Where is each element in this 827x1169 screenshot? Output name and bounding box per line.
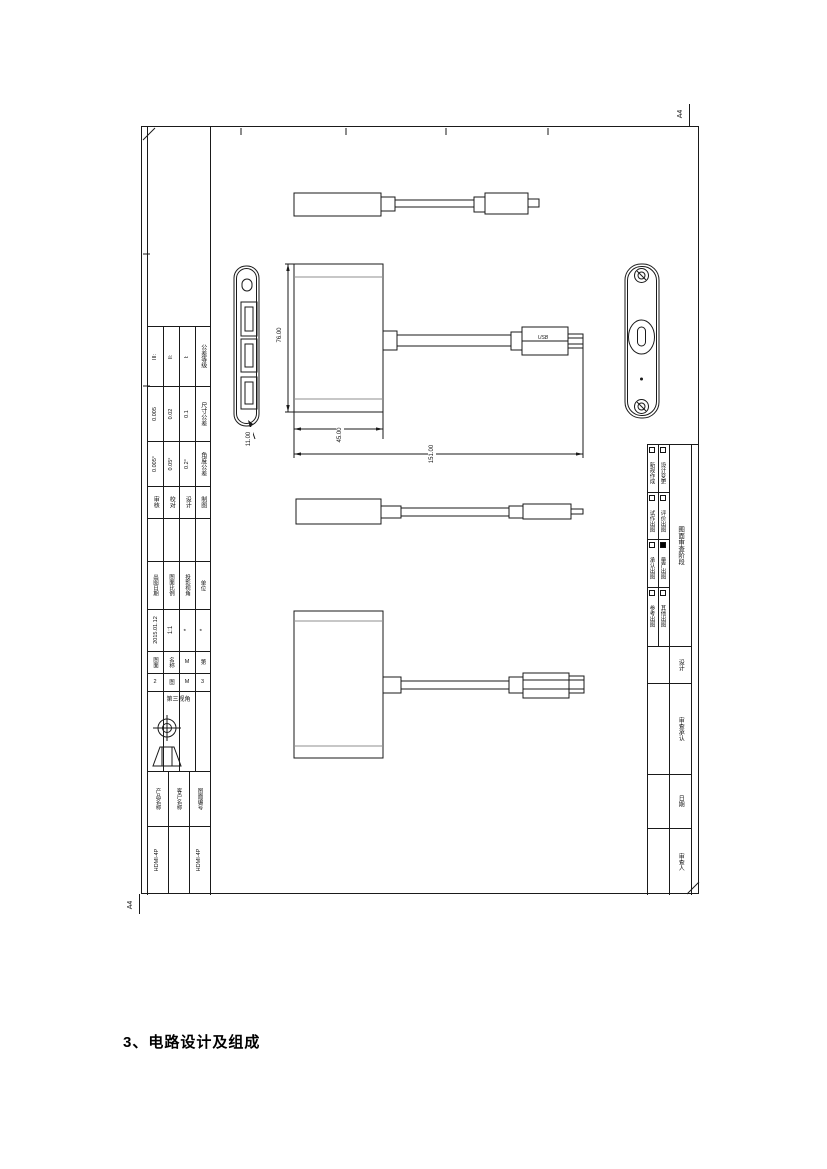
review-stage-header: 图面审查阶段 <box>669 444 691 646</box>
third-angle-projection-symbol <box>153 715 181 766</box>
sign-label-reviewer: 审查人 <box>669 828 691 895</box>
dim-body-height: 76.00 <box>276 323 284 347</box>
checkbox-mass-production <box>660 542 666 548</box>
checkbox-eval-release <box>660 495 666 501</box>
meta-note-1b: 2 <box>147 673 163 691</box>
view-top-profile <box>294 193 539 216</box>
cad-drawing-sheet: 76.00 45.00 151.00 11.00 USB 公差等级 III: I… <box>141 126 699 894</box>
section-heading: 3、电路设计及组成 <box>123 1031 260 1052</box>
role-label-draft: 制图 <box>195 486 210 518</box>
meta-note-3a: M <box>179 651 195 673</box>
meta-note-2b: 图 <box>163 673 179 691</box>
checkbox-label: 承认出图 <box>646 551 657 585</box>
role-label-design: 设计 <box>179 486 195 518</box>
frame-marks <box>143 128 699 894</box>
title-block-right-line <box>210 127 211 895</box>
size-tolerance-v1: 0.005 <box>151 401 159 427</box>
drawing-line-art <box>142 127 700 895</box>
dim-body-thickness: 11.00 <box>245 427 253 451</box>
checkbox-other <box>660 590 666 596</box>
drawing-number-value: HDMI-4P <box>195 846 203 874</box>
meta-note-4b: 3 <box>195 673 210 691</box>
checkbox-label: 评价出图 <box>657 504 668 538</box>
meta-note-2a: 名称 <box>163 651 179 673</box>
paper-size-label-top: A4 <box>677 107 685 121</box>
usb-logo: USB <box>532 334 554 343</box>
tolerance-grade-v1: III: <box>151 344 159 370</box>
checkbox-design-change <box>660 447 666 453</box>
paper-mark-line-bottom <box>139 894 140 914</box>
meta-value-4: * <box>199 617 207 643</box>
dimension-lines <box>248 264 583 458</box>
angle-tolerance-label: 角度公差 <box>195 441 210 486</box>
size-tolerance-v3: 0.1 <box>183 401 191 427</box>
product-name-label: 产品名称 <box>147 771 168 826</box>
meta-note-4a: 第 <box>195 651 210 673</box>
angle-tolerance-v3: 0.2° <box>183 451 191 477</box>
meta-label-date: 出图日期 <box>147 561 163 609</box>
meta-value-3: * <box>183 617 191 643</box>
meta-label-scale: 图面比例 <box>163 561 179 609</box>
dim-overall-length: 151.00 <box>428 440 436 468</box>
sign-label-design: 设计 <box>669 646 691 683</box>
angle-tolerance-v1: 0.005° <box>151 451 159 477</box>
checkbox-label: 试作出图 <box>646 504 657 538</box>
projection-angle-label: 第三视角 <box>147 693 210 707</box>
customer-name-label: 客户名称 <box>168 771 189 826</box>
tolerance-grade-label: 公差等级 <box>195 326 210 386</box>
view-right-side <box>625 264 659 418</box>
role-label-audit: 审核 <box>147 486 163 518</box>
tolerance-grade-v3: I: <box>183 344 191 370</box>
meta-note-3b: M <box>179 673 195 691</box>
meta-label-unit: 单位 <box>195 561 210 609</box>
view-edge-profile <box>296 499 583 524</box>
checkbox-approval-release <box>649 542 655 548</box>
document-page: { "document": { "heading": "3、电路设计及组成" }… <box>0 0 827 1169</box>
sign-label-review: 审查承认 <box>669 683 691 774</box>
paper-size-label-bottom: A4 <box>127 898 135 912</box>
checkbox-trial-release <box>649 495 655 501</box>
tolerance-grade-v2: II: <box>167 344 175 370</box>
angle-tolerance-v2: 0.05° <box>167 451 175 477</box>
checkbox-reference <box>649 590 655 596</box>
checkbox-label: 其他出图 <box>657 599 668 633</box>
drawing-date: 2015.01.12 <box>152 612 160 648</box>
checkbox-label: 新规作成 <box>646 456 657 490</box>
drawing-scale: 1:1 <box>167 617 175 643</box>
sign-label-date: 日期 <box>669 774 691 828</box>
size-tolerance-v2: 0.02 <box>167 401 175 427</box>
view-left-port-side <box>234 266 259 426</box>
checkbox-label: 参考出图 <box>646 599 657 633</box>
product-name-value: HDMI-4P <box>153 846 161 874</box>
size-tolerance-label: 尺寸公差 <box>195 386 210 441</box>
role-label-check: 校对 <box>163 486 179 518</box>
meta-label-projection: 投影视角 <box>179 561 195 609</box>
meta-note-1a: 图面 <box>147 651 163 673</box>
paper-mark-line-top <box>689 104 690 126</box>
checkbox-label: 设计变更 <box>657 456 668 490</box>
checkbox-new-release <box>649 447 655 453</box>
drawing-number-label: 图面编号 <box>189 771 210 826</box>
view-back <box>294 611 584 758</box>
dim-body-width: 45.00 <box>336 423 344 447</box>
checkbox-label: 量产出图 <box>657 551 668 585</box>
